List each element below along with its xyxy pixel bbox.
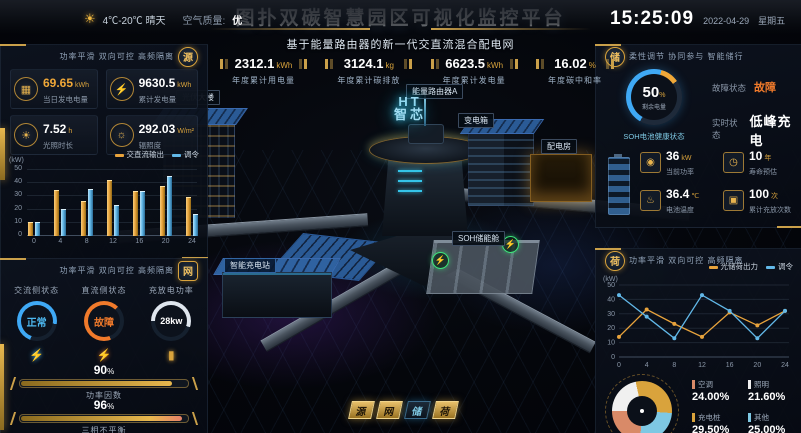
panel-grid: 功率平滑 双向可控 高频隔离 网 交流侧状态 正常 ⚡ 直流侧状态 故障 ⚡ 充… (0, 258, 208, 433)
svg-text:0: 0 (617, 362, 621, 369)
pie-legend-item: 照明21.60% (748, 379, 798, 403)
tower-light-slit (398, 180, 422, 182)
pie-legend-item: 充电桩29.50% (692, 412, 742, 433)
clock-weekday: 星期五 (758, 14, 785, 27)
mode-button-load[interactable]: 荷 (432, 401, 459, 419)
load-breakdown-legend: 空调24.00%照明21.60%充电桩29.50%其他25.00% (692, 379, 798, 433)
pie-legend-item: 空调24.00% (692, 379, 742, 403)
source-stats-grid: ▦ 69.65kWh 当日发电电量 ⚡ 9630.5kWh 累计发电量 ☀ 7.… (10, 69, 198, 155)
scene-label-power-room[interactable]: 配电房 (541, 139, 577, 154)
lightning-icon: ⚡ (110, 77, 134, 101)
left-edge-accent (0, 344, 4, 430)
stat-cycle-count: ▣ 100次 累计充放次数 (723, 185, 798, 215)
storage-stats-grid: ◉ 36kW 当前功率 ◷ 10年 寿命预估 ♨ 36.4℃ 电池温度 ▣ 10… (640, 147, 798, 215)
donut-center-dot (640, 409, 644, 413)
air-quality-value: 优 (232, 12, 242, 27)
stat-total-generation: ⚡ 9630.5kWh 累计发电量 (106, 69, 198, 109)
panel-storage: 储 柔性调节 协同参与 智能储行 50% 剩余电量 SOH电池健康状态 故障状态… (595, 44, 801, 228)
scene-power-room-pavilion (530, 154, 592, 202)
panel-load: 荷 功率平滑 双向可控 高频隔离 光储荷出力调令 010203040500481… (595, 248, 801, 433)
tower-light-slit (398, 190, 422, 192)
bar-chart-legend: 交直流输出调令 (115, 149, 200, 160)
subtitle-banner: 基于能量路由器的新一代交直流混合配电网 (0, 36, 801, 52)
stat-battery-temp: ♨ 36.4℃ 电池温度 (640, 185, 715, 215)
radiation-icon: ☼ (110, 123, 134, 147)
svg-text:12: 12 (698, 362, 706, 369)
clock-date: 2022-04-29 (703, 16, 749, 26)
clock-icon: ◷ (723, 152, 744, 173)
realtime-status-row: 实时状态 低峰充电 (712, 111, 798, 149)
fault-status-value: 故障 (754, 79, 776, 95)
line-chart-svg: 0102030405004812162024(kW) (601, 273, 795, 377)
power-factor-bar: 90% 功率因数 (19, 363, 189, 401)
weather-range: 4℃-20℃ 晴天 (103, 12, 166, 27)
charging-status-icon: ⚡ (432, 252, 449, 269)
sun-icon: ☀ (14, 123, 38, 147)
battery-stack-graphic (608, 157, 630, 215)
lightning-icon: ⚡ (81, 348, 126, 362)
svg-text:50: 50 (607, 282, 615, 289)
svg-text:20: 20 (753, 362, 761, 369)
fault-status-row: 故障状态 故障 (712, 79, 798, 95)
svg-text:0: 0 (611, 354, 615, 361)
stat-current-power: ◉ 36kW 当前功率 (640, 147, 715, 177)
scene-label-transformer[interactable]: 变电箱 (458, 113, 494, 128)
scene-substation-building (468, 130, 534, 206)
load-breakdown-donut (612, 381, 672, 433)
svg-text:40: 40 (607, 296, 615, 303)
gauge-ac-status: 交流侧状态 正常 ⚡ (14, 285, 59, 362)
clock-widget: 15:25:09 2022-04-29 星期五 (610, 8, 785, 30)
mode-button-source[interactable]: 源 (348, 401, 375, 419)
kpi-annual-carbon: 3124.1kg 年度累计碳排放 (325, 55, 412, 86)
tower-light-slit (398, 170, 422, 172)
gauge-icon: ◉ (640, 152, 661, 173)
svg-text:10: 10 (607, 340, 615, 347)
sun-icon: ☀ (84, 11, 96, 27)
gauge-charge-power: 充放电功率 28kw ▮ (149, 285, 194, 362)
scene-label-charging-station[interactable]: 智能充电站 (224, 258, 276, 273)
svg-text:8: 8 (672, 362, 676, 369)
soh-caption: SOH电池健康状态 (598, 131, 710, 142)
kpi-annual-consumption: 2312.1kWh 年度累计用电量 (220, 55, 307, 86)
stat-lifespan: ◷ 10年 寿命预估 (723, 147, 798, 177)
soc-gauge: 50% 剩余电量 (626, 69, 682, 125)
panel-load-badge[interactable]: 荷 (605, 251, 625, 271)
grid-gauges: 交流侧状态 正常 ⚡ 直流侧状态 故障 ⚡ 充放电功率 28kw ▮ (3, 285, 205, 362)
line-chart-legend: 光储荷出力调令 (709, 261, 794, 272)
panel-source: 功率平滑 双向可控 高频隔离 源 ▦ 69.65kWh 当日发电电量 ⚡ 963… (0, 44, 208, 259)
svg-text:4: 4 (645, 362, 649, 369)
mode-switcher: 源 网 储 荷 (350, 401, 457, 419)
battery-icon: ▮ (149, 348, 194, 362)
pie-legend-item: 其他25.00% (748, 412, 798, 433)
solar-panel-icon: ▦ (14, 77, 38, 101)
panel-source-tagline: 功率平滑 双向可控 高频隔离 (60, 51, 174, 62)
kpi-annual-generation: 6623.5kWh 年度累计发电量 (431, 55, 518, 86)
mode-button-grid[interactable]: 网 (376, 401, 403, 419)
lightning-icon: ⚡ (14, 348, 59, 362)
mode-button-storage[interactable]: 储 (404, 401, 431, 419)
dashboard-root: ⚡ ⚡ 光伏大楼 能量路由器A HT 智芯 变电箱 配电房 SOH储能舱 智能充… (0, 0, 801, 433)
left-edge-accent (0, 128, 5, 180)
scene-label-soh-cabin[interactable]: SOH储能舱 (452, 231, 505, 246)
phase-imbalance-bar: 96% 三相不平衡 (19, 398, 189, 433)
stat-sunshine-hours: ☀ 7.52h 光照时长 (10, 115, 98, 155)
top-kpi-row: 2312.1kWh 年度累计用电量 3124.1kg 年度累计碳排放 6623.… (220, 55, 614, 86)
kpi-carbon-neutral-rate: 16.02% 年度碳中和率 (536, 55, 614, 86)
svg-text:20: 20 (607, 325, 615, 332)
scene-router-tower-body (382, 152, 468, 236)
panel-grid-tagline: 功率平滑 双向可控 高频隔离 (60, 265, 174, 276)
svg-text:24: 24 (781, 362, 789, 369)
realtime-status-value: 低峰充电 (749, 111, 798, 149)
svg-text:16: 16 (726, 362, 734, 369)
air-quality-label: 空气质量: (182, 12, 225, 27)
panel-grid-badge[interactable]: 网 (178, 261, 198, 281)
scene-router-hub (408, 124, 444, 144)
panel-storage-tagline: 柔性调节 协同参与 智能储行 (629, 51, 743, 62)
scene-charging-station (222, 272, 332, 318)
svg-text:30: 30 (607, 311, 615, 318)
clock-time: 15:25:09 (610, 8, 694, 30)
scene-label-ht-core[interactable]: HT 智芯 (394, 95, 426, 121)
thermometer-icon: ♨ (640, 190, 661, 211)
weather-widget: ☀ 4℃-20℃ 晴天 空气质量: 优 (84, 11, 242, 27)
ac-dc-output-bar-chart: 交直流输出调令 (kW)0102030405004812162024 (9, 161, 201, 253)
stat-daily-generation: ▦ 69.65kWh 当日发电电量 (10, 69, 98, 109)
battery-cycle-icon: ▣ (723, 190, 744, 211)
svg-text:(kW): (kW) (603, 276, 618, 283)
gauge-dc-status: 直流侧状态 故障 ⚡ (81, 285, 126, 362)
load-output-line-chart: 光储荷出力调令 0102030405004812162024(kW) (601, 273, 795, 377)
